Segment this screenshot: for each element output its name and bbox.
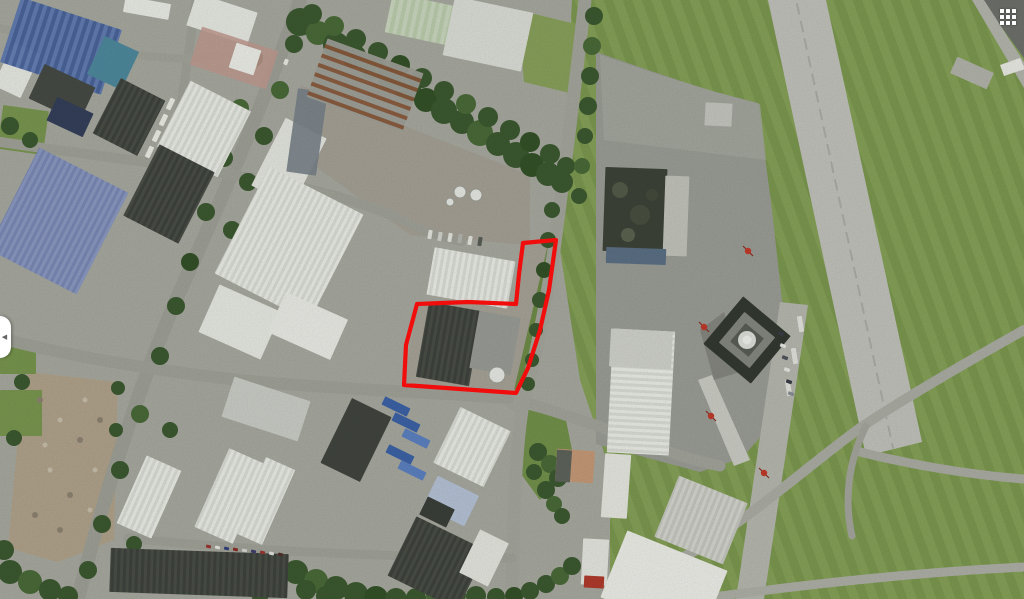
apps-grid-dot	[1000, 15, 1004, 19]
apps-grid-dot	[1006, 9, 1010, 13]
satellite-map[interactable]	[0, 0, 1024, 599]
apps-grid-dot	[1006, 15, 1010, 19]
chevron-left-icon: ◀	[2, 334, 7, 341]
apps-grid-icon[interactable]	[1000, 9, 1016, 25]
apps-grid-dot	[1000, 9, 1004, 13]
apps-grid-dot	[1012, 21, 1016, 25]
map-viewport: ◀	[0, 0, 1024, 599]
apps-grid-dot	[1006, 21, 1010, 25]
apps-grid-dot	[1000, 21, 1004, 25]
map-imagery	[0, 0, 1024, 599]
side-panel-toggle[interactable]: ◀	[0, 316, 11, 358]
grain-overlay	[0, 0, 1024, 599]
apps-grid-dot	[1012, 15, 1016, 19]
apps-grid-dot	[1012, 9, 1016, 13]
photo-grain	[0, 0, 1024, 599]
